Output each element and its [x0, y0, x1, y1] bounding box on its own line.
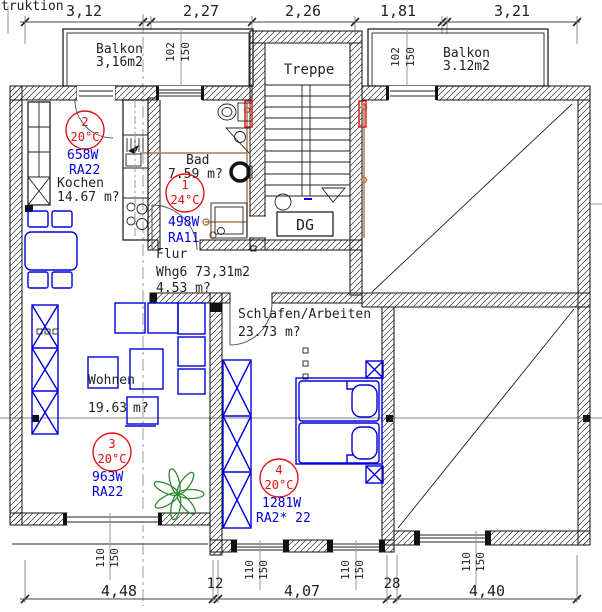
- dim-bottom-2: 12: [207, 576, 224, 592]
- room-kochen: Kochen 14.67 m? 2 20°C 658W RA22: [25, 100, 148, 288]
- window-height-mark: 150: [179, 42, 192, 62]
- radiator-type: RA22: [92, 485, 123, 500]
- window-width-mark: 110: [243, 560, 256, 580]
- radiator-temp: 24°C: [171, 193, 200, 207]
- heating-circle-4: 4 20°C 1281W RA2* 22: [256, 459, 311, 526]
- apartment-total: Whg6 73,31m2: [156, 265, 250, 280]
- window-top-left: [156, 86, 204, 100]
- room-label: Bad: [186, 153, 209, 168]
- radiator-power: 1281W: [262, 496, 301, 511]
- room-label: Wohnen: [88, 373, 135, 388]
- radiator-temp: 20°C: [71, 130, 100, 144]
- dim-top-4: 1,81: [380, 2, 416, 20]
- kitchen-tall-cabinet: [25, 102, 50, 212]
- dim-bottom-1: 4,48: [101, 582, 137, 600]
- dim-top-5: 3,21: [494, 2, 530, 20]
- radiator-power: 963W: [92, 470, 123, 485]
- shelf-unit: [32, 305, 58, 434]
- wardrobe: [223, 360, 251, 528]
- room-area: 3.12m2: [443, 59, 490, 74]
- dim-top-3: 2,26: [285, 2, 321, 20]
- balcony-door-left: [77, 86, 115, 100]
- dim-top-2: 2,27: [183, 2, 219, 20]
- radiator-id: 2: [81, 115, 88, 129]
- dining-set: [25, 211, 77, 288]
- radiator-type: RA2* 22: [256, 511, 311, 526]
- window-height-mark: 150: [404, 47, 417, 67]
- room-label: Flur: [156, 247, 187, 262]
- room-area: 7.59 m?: [168, 167, 223, 182]
- heating-circle-1: 1 24°C 498W RA11: [166, 174, 204, 246]
- room-area-unit: m?: [133, 401, 149, 416]
- room-label: Treppe: [284, 62, 335, 78]
- staircase: Treppe DG: [265, 62, 350, 236]
- window-width-mark: 110: [94, 548, 107, 568]
- dim-top-1: 3,12: [66, 2, 102, 20]
- plant: [153, 468, 204, 521]
- shower: [211, 203, 247, 238]
- dim-bottom-5: 4,40: [469, 582, 505, 600]
- room-label: Schlafen/Arbeiten: [238, 307, 371, 322]
- radiator-temp: 20°C: [265, 478, 294, 492]
- room-area: 23.73 m?: [238, 325, 301, 340]
- radiator-type: RA22: [69, 163, 100, 178]
- apartment-entry-door: [249, 216, 266, 238]
- dim-bottom-3: 4,07: [284, 582, 320, 600]
- window-height-mark: 150: [474, 552, 487, 572]
- balcony-door-right: [386, 86, 438, 100]
- radiator-id: 1: [181, 178, 188, 192]
- title-fragment: truktion: [1, 0, 64, 14]
- double-bed: [296, 361, 383, 483]
- heating-circle-3: 3 20°C 963W RA22: [92, 433, 131, 500]
- radiator-id: 4: [275, 463, 282, 477]
- room-area: 4.53 m?: [156, 281, 211, 296]
- round-basin: [231, 163, 252, 181]
- room-wohnen: Wohnen 19.63 m? 3 20°C 963W RA22: [32, 303, 205, 520]
- room-area-value: 19.63: [88, 401, 127, 416]
- window-width-mark: 110: [339, 560, 352, 580]
- window-bottom-right: [414, 531, 491, 545]
- room-label: Kochen: [57, 176, 104, 191]
- radiator-power: 658W: [67, 148, 98, 163]
- window-width-mark: 110: [460, 552, 473, 572]
- window-height-mark: 150: [108, 548, 121, 568]
- room-area: 3,16m2: [96, 55, 143, 70]
- radiator-temp: 20°C: [98, 452, 127, 466]
- radiator-power: 498W: [168, 215, 199, 230]
- room-bad: Bad 7.59 m? 1 24°C 498W RA11: [152, 103, 252, 250]
- pipe-arrow: [128, 145, 139, 154]
- window-width-mark: 102: [389, 47, 402, 67]
- room-flur: Flur Whg6 73,31m2 4.53 m?: [156, 246, 256, 296]
- dg-label: DG: [296, 216, 314, 234]
- radiator-id: 3: [108, 437, 115, 451]
- window-height-mark: 150: [353, 560, 366, 580]
- radiator-type: RA11: [168, 231, 199, 246]
- window-width-mark: 102: [164, 42, 177, 62]
- window-height-mark: 150: [257, 560, 270, 580]
- floor-plan: truktion 3,12 2,27 2,26 1,81 3,21 Balkon…: [0, 0, 602, 612]
- terrace-door-wohnen: [63, 513, 162, 525]
- heating-circle-2: 2 20°C 658W RA22: [66, 111, 104, 178]
- dim-bottom-4: 28: [384, 576, 401, 592]
- kitchen-counter: [123, 100, 148, 240]
- room-schlafen: Schlafen/Arbeiten 23.73 m? 4 20°C 1281W …: [223, 303, 383, 528]
- room-area: 14.67 m?: [57, 190, 120, 205]
- adjacent-rooms: [372, 104, 574, 528]
